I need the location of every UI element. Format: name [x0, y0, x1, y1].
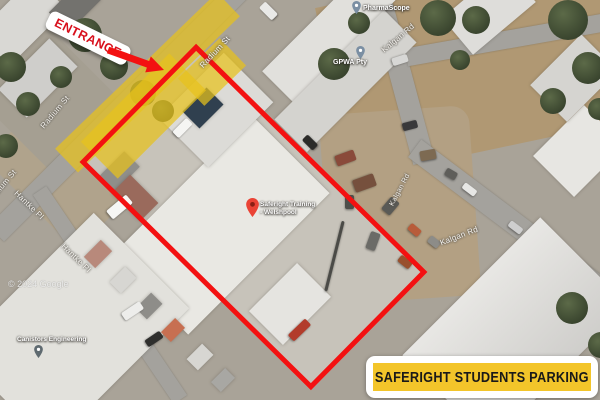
map-pin-icon: [356, 46, 365, 59]
shed-roof: [187, 344, 214, 371]
map-pin-icon: [34, 345, 43, 358]
place-label-canistors: Canistors Engineering: [17, 336, 86, 343]
students-parking-banner-fill: SAFERIGHT STUDENTS PARKING: [373, 363, 591, 391]
tree: [572, 52, 600, 84]
place-label-saferight-line2: - Welshpool: [260, 209, 315, 217]
tree: [450, 50, 470, 70]
tree: [462, 6, 490, 34]
tree: [420, 0, 456, 36]
place-label-gpwa-pty: GPWA Pty: [333, 59, 367, 66]
tree: [50, 66, 72, 88]
satellite-map: Radium St Radium St Radium St Hantke Pl …: [0, 0, 600, 400]
place-label-saferight-line1: Saferight Training: [260, 201, 315, 209]
tree: [348, 12, 370, 34]
shed-roof: [211, 368, 235, 392]
students-parking-banner-text: SAFERIGHT STUDENTS PARKING: [375, 369, 589, 386]
saferight-map-pin-icon: [246, 198, 259, 217]
tree: [548, 0, 588, 40]
place-label-pharmascope: PharmaScope: [363, 5, 410, 12]
map-pin-icon: [352, 1, 361, 14]
tree: [16, 92, 40, 116]
google-watermark: © 2024 Google: [8, 279, 69, 289]
tree: [540, 88, 566, 114]
tree: [556, 292, 588, 324]
students-parking-banner: SAFERIGHT STUDENTS PARKING: [366, 356, 598, 398]
place-label-saferight: Saferight Training - Welshpool: [260, 201, 315, 217]
vehicle: [259, 1, 278, 20]
